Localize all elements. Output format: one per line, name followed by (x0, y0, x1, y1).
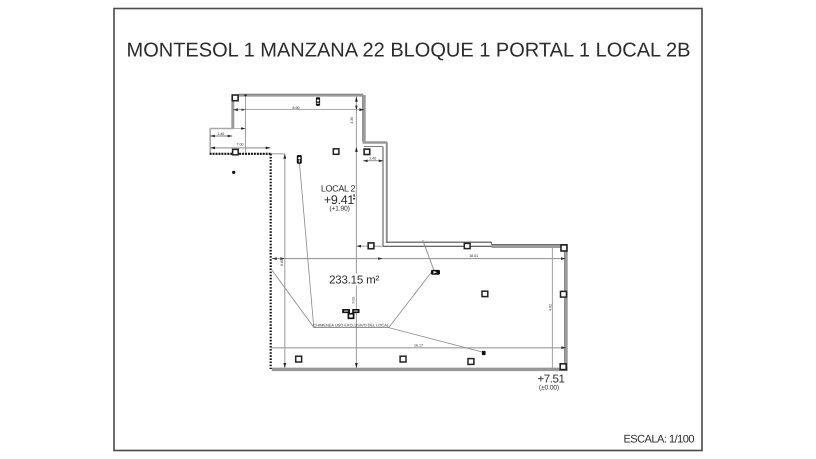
svg-text:4.35: 4.35 (350, 117, 354, 124)
svg-text:4.92: 4.92 (549, 304, 553, 311)
svg-text:16.17: 16.17 (414, 343, 423, 347)
svg-text:ESCALA: 1/100: ESCALA: 1/100 (623, 434, 694, 446)
svg-text:233.15 m²: 233.15 m² (329, 275, 379, 287)
svg-text:8.80: 8.80 (280, 259, 284, 266)
svg-text:18.01: 18.01 (469, 254, 478, 258)
svg-text:LOCAL 2: LOCAL 2 (321, 184, 356, 194)
svg-text:1.40: 1.40 (217, 132, 224, 136)
svg-text:CHIMENEA USO EXCLUSIVO DEL LOC: CHIMENEA USO EXCLUSIVO DEL LOCAL (313, 322, 389, 327)
svg-text:7.00: 7.00 (237, 143, 244, 147)
svg-text:8.90: 8.90 (293, 106, 300, 110)
svg-text:MONTESOL 1 MANZANA 22 BLOQUE 1: MONTESOL 1 MANZANA 22 BLOQUE 1 PORTAL 1 … (127, 39, 691, 61)
svg-text:(+1.90): (+1.90) (329, 205, 349, 212)
svg-text:9.05: 9.05 (351, 297, 355, 304)
svg-text:(±0.00): (±0.00) (539, 385, 559, 392)
svg-text:1.40: 1.40 (369, 156, 376, 160)
